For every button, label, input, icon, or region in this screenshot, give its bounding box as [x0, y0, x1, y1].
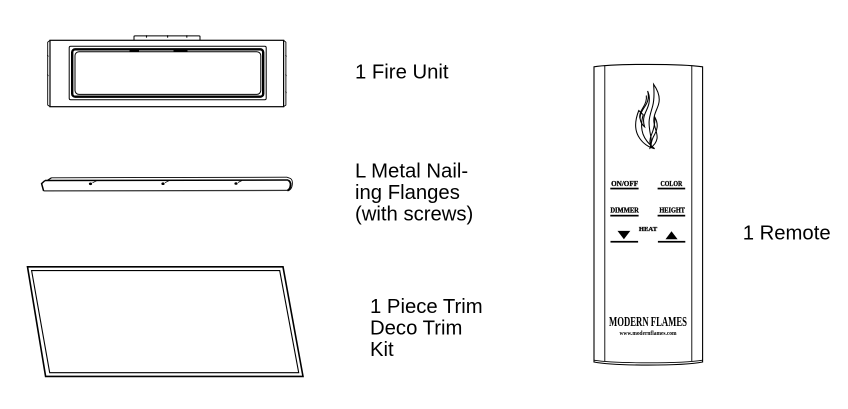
svg-text:1 Remote: 1 Remote — [743, 223, 831, 245]
svg-text:1 Fire Unit: 1 Fire Unit — [355, 62, 449, 84]
svg-text:ON/OFF: ON/OFF — [611, 180, 639, 188]
svg-text:COLOR: COLOR — [661, 180, 683, 188]
svg-text:Deco Trim: Deco Trim — [370, 318, 462, 340]
svg-text:ing Flanges: ing Flanges — [355, 182, 460, 204]
svg-text:(with screws): (with screws) — [355, 204, 473, 226]
svg-text:1 Piece Trim: 1 Piece Trim — [370, 296, 483, 318]
svg-text:www.modernflames.com: www.modernflames.com — [620, 331, 677, 337]
svg-text:MODERN FLAMES: MODERN FLAMES — [609, 314, 687, 329]
svg-text:HEIGHT: HEIGHT — [659, 206, 685, 214]
svg-text:HEAT: HEAT — [639, 226, 658, 233]
svg-text:DIMMER: DIMMER — [610, 206, 639, 214]
svg-text:L Metal Nail-: L Metal Nail- — [355, 161, 468, 183]
svg-text:Kit: Kit — [370, 339, 394, 361]
